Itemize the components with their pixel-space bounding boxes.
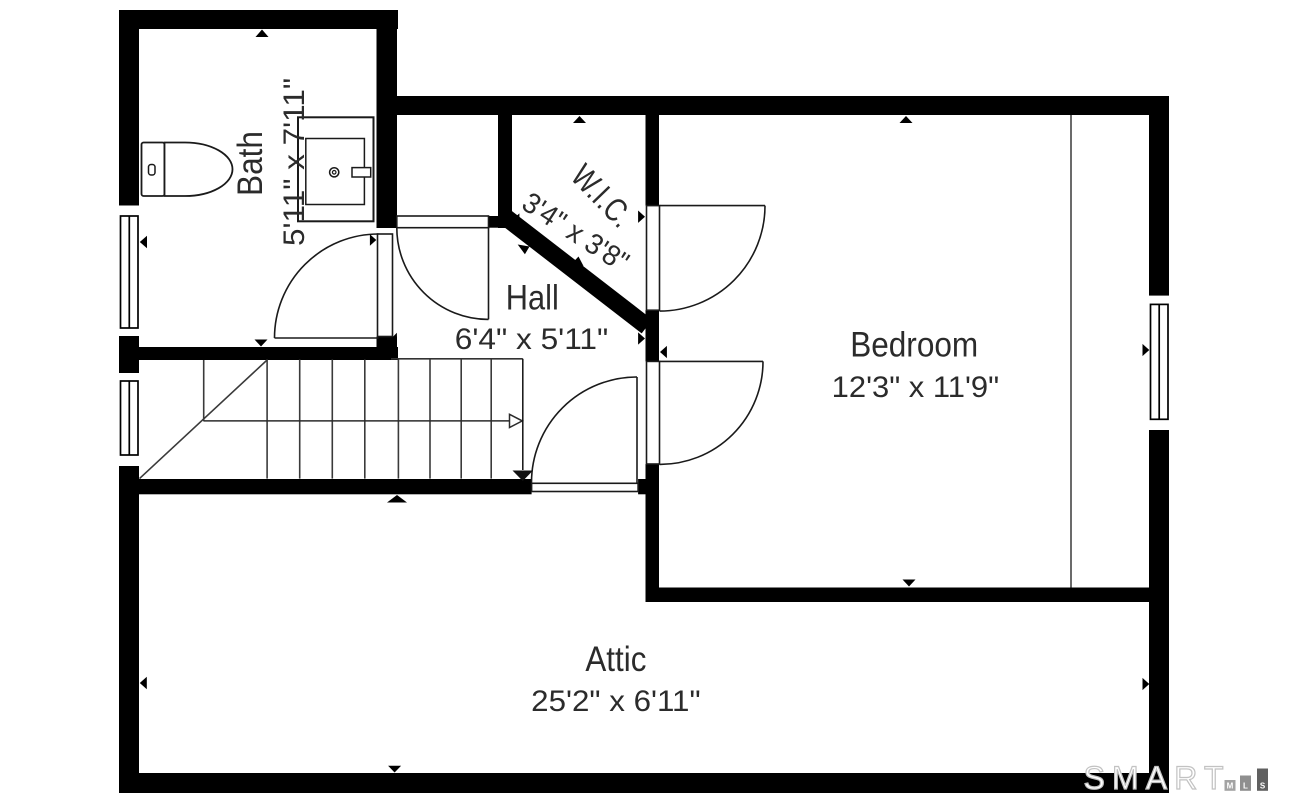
- svg-text:5'11" x 7'11": 5'11" x 7'11": [278, 78, 311, 246]
- svg-text:L: L: [1243, 782, 1248, 791]
- svg-text:S: S: [1260, 782, 1266, 791]
- svg-text:25'2" x 6'11": 25'2" x 6'11": [531, 685, 700, 718]
- svg-text:Hall: Hall: [506, 279, 559, 318]
- svg-text:Bath: Bath: [231, 131, 270, 196]
- svg-text:12'3" x 11'9": 12'3" x 11'9": [832, 371, 1000, 404]
- svg-text:6'4" x 5'11": 6'4" x 5'11": [455, 323, 609, 356]
- svg-text:Attic: Attic: [585, 640, 646, 679]
- svg-text:M: M: [1227, 782, 1234, 791]
- svg-text:Bedroom: Bedroom: [850, 325, 978, 364]
